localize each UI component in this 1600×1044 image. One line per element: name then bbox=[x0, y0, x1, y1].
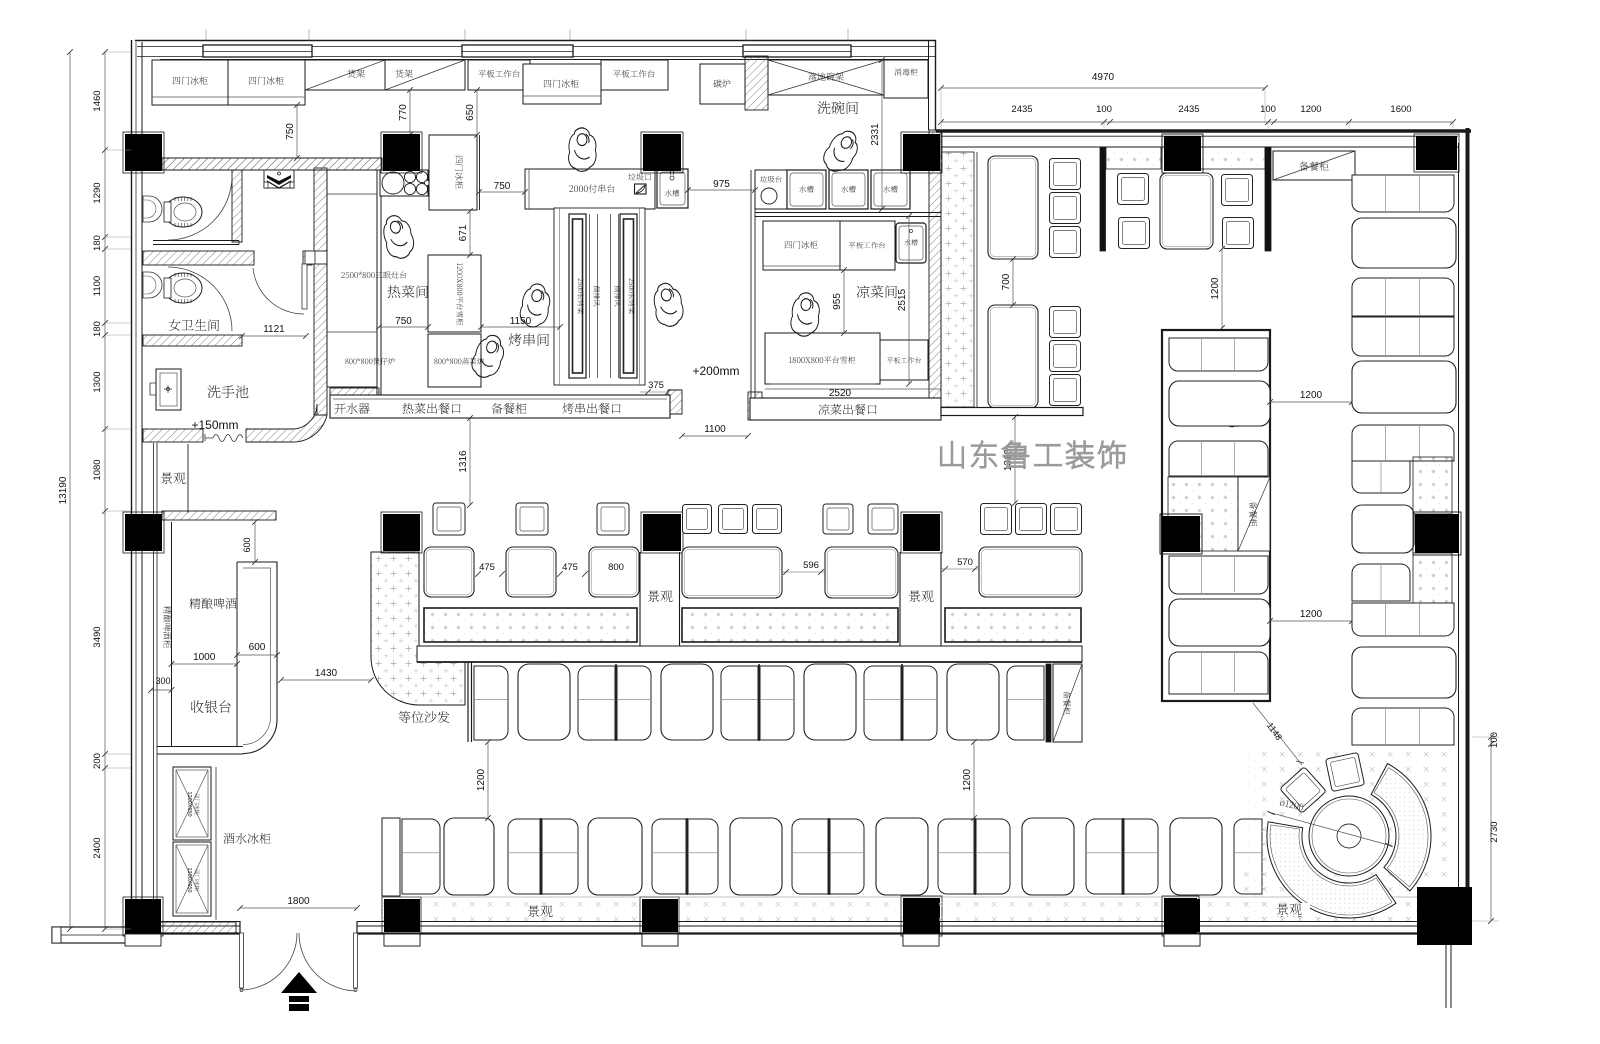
svg-text:180: 180 bbox=[92, 321, 103, 337]
svg-text:1200: 1200 bbox=[1300, 104, 1321, 115]
svg-text:1200X650: 1200X650 bbox=[186, 867, 192, 892]
svg-text:1460: 1460 bbox=[92, 90, 103, 111]
svg-text:1800: 1800 bbox=[287, 896, 310, 907]
svg-text:750: 750 bbox=[494, 181, 511, 192]
svg-text:200: 200 bbox=[92, 753, 103, 769]
svg-text:2730: 2730 bbox=[1489, 821, 1500, 842]
svg-text:+200mm: +200mm bbox=[692, 364, 739, 378]
svg-text:1080: 1080 bbox=[92, 459, 103, 480]
svg-text:2515: 2515 bbox=[897, 288, 908, 311]
svg-text:1100: 1100 bbox=[92, 276, 103, 296]
svg-text:750: 750 bbox=[285, 123, 296, 140]
svg-text:975: 975 bbox=[713, 179, 730, 190]
svg-text:300: 300 bbox=[155, 676, 170, 686]
svg-text:1000: 1000 bbox=[193, 652, 216, 663]
svg-text:1200: 1200 bbox=[1210, 277, 1221, 300]
svg-text:570: 570 bbox=[957, 557, 973, 568]
svg-text:1100: 1100 bbox=[704, 424, 726, 435]
svg-text:671: 671 bbox=[458, 224, 469, 241]
svg-text:1300: 1300 bbox=[92, 371, 103, 392]
svg-text:100: 100 bbox=[1489, 732, 1500, 748]
svg-text:4970: 4970 bbox=[1092, 72, 1115, 83]
svg-text:2435: 2435 bbox=[1178, 104, 1199, 115]
svg-text:650: 650 bbox=[465, 104, 476, 121]
svg-text:770: 770 bbox=[398, 104, 409, 121]
svg-text:1200X650: 1200X650 bbox=[186, 791, 192, 816]
svg-text:800: 800 bbox=[608, 562, 624, 573]
svg-text:600: 600 bbox=[249, 642, 266, 653]
svg-text:700: 700 bbox=[1001, 273, 1012, 290]
svg-text:1316: 1316 bbox=[458, 450, 469, 473]
svg-text:1200: 1200 bbox=[962, 768, 973, 791]
svg-text:596: 596 bbox=[803, 560, 819, 571]
svg-text:600: 600 bbox=[242, 537, 252, 552]
svg-text:1200: 1200 bbox=[1300, 390, 1323, 401]
svg-text:+150mm: +150mm bbox=[191, 418, 238, 432]
svg-text:100: 100 bbox=[1260, 104, 1276, 115]
svg-text:100: 100 bbox=[1096, 104, 1112, 115]
svg-text:955: 955 bbox=[832, 293, 843, 310]
svg-text:1200: 1200 bbox=[1300, 609, 1323, 620]
svg-text:750: 750 bbox=[395, 316, 412, 327]
svg-text:180: 180 bbox=[92, 235, 103, 251]
svg-text:475: 475 bbox=[562, 562, 578, 573]
svg-text:2520: 2520 bbox=[829, 388, 852, 399]
svg-text:3490: 3490 bbox=[92, 626, 103, 647]
svg-text:13190: 13190 bbox=[58, 476, 69, 504]
svg-text:1290: 1290 bbox=[92, 182, 103, 203]
svg-text:2400: 2400 bbox=[92, 837, 103, 858]
svg-text:1121: 1121 bbox=[263, 324, 285, 335]
svg-text:1600: 1600 bbox=[1390, 104, 1411, 115]
svg-text:1430: 1430 bbox=[315, 668, 338, 679]
svg-text:2435: 2435 bbox=[1011, 104, 1032, 115]
svg-text:1200: 1200 bbox=[476, 768, 487, 791]
svg-text:475: 475 bbox=[479, 562, 495, 573]
svg-text:2331: 2331 bbox=[870, 123, 881, 146]
